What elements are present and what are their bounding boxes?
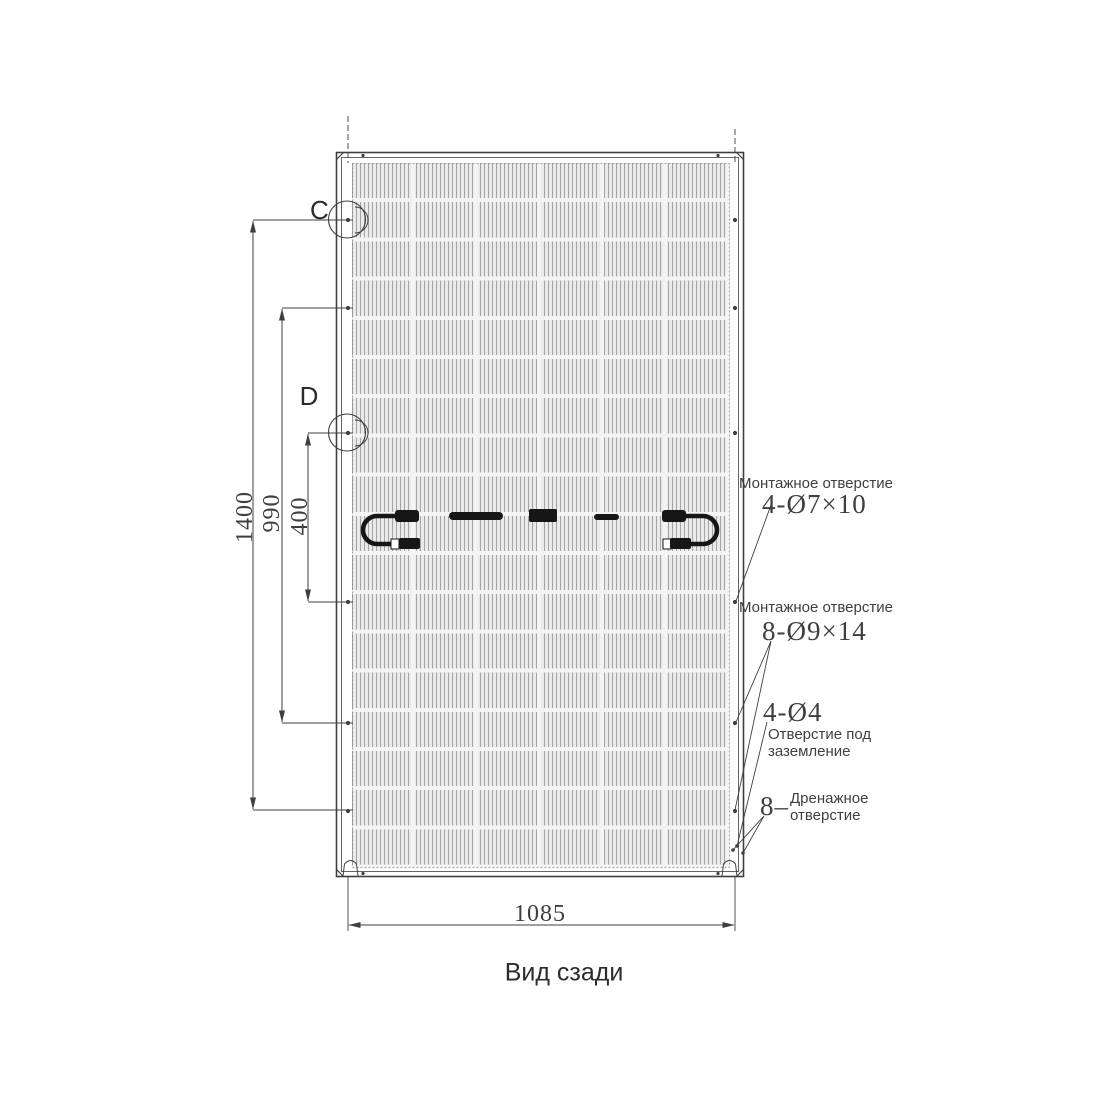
connector-left	[399, 538, 420, 549]
centerlines	[348, 116, 735, 931]
grounding-spec: 4-Ø4	[763, 699, 823, 726]
mounting-hole-mid-spec: 8-Ø9×14	[762, 618, 867, 645]
connector-right-tip	[663, 539, 671, 549]
drawing-caption: Вид сзади	[505, 961, 624, 986]
junction-boxes	[395, 509, 686, 522]
connector-right	[670, 538, 691, 549]
dim-mounting-outer-label: 990	[260, 494, 284, 533]
dimension-lines	[253, 221, 734, 925]
detail-label-c: C	[310, 197, 329, 223]
dim-height-total-label: 1400	[233, 491, 257, 543]
linework-svg	[0, 0, 1100, 1100]
mounting-hole-mid-label: Монтажное отверстие	[739, 600, 893, 617]
detail-label-d: D	[300, 383, 319, 409]
drainage-label: Дренажное отверстие	[790, 791, 868, 825]
connector-left-tip	[391, 539, 399, 549]
dim-mounting-inner-label: 400	[288, 497, 312, 536]
drawing-canvas: C D 1400 990 400 1085 Монтажное отверсти…	[0, 0, 1100, 1100]
grounding-label: Отверстие под заземление	[768, 727, 871, 761]
drainage-spec: 8–	[760, 793, 789, 820]
mounting-hole-top-spec: 4-Ø7×10	[762, 491, 867, 518]
dim-width-label: 1085	[514, 902, 566, 926]
frame-corner-keys	[343, 861, 737, 877]
